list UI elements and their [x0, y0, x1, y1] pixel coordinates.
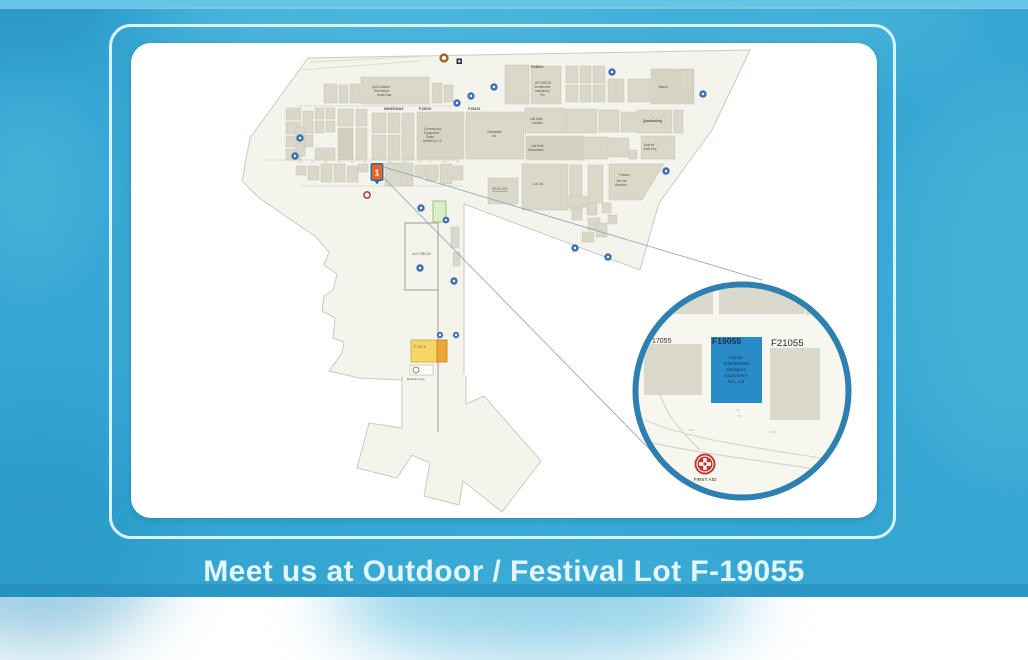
svg-text:Hunan: Hunan	[729, 355, 743, 360]
svg-text:Graft Exp: Graft Exp	[643, 147, 657, 151]
svg-text:Quadbarling: Quadbarling	[643, 119, 662, 123]
svg-text:Lot Ltd: Lot Ltd	[533, 182, 543, 186]
svg-text:F15029: F15029	[419, 107, 431, 111]
svg-text:AmeriCa LLC: AmeriCa LLC	[423, 139, 443, 143]
svg-text:F15033: F15033	[468, 107, 480, 111]
svg-text:Member camp: Member camp	[407, 377, 425, 381]
svg-text:Tarano: Tarano	[658, 85, 668, 89]
svg-text:AmeriGas: AmeriGas	[377, 93, 392, 97]
svg-text:MINEDMAX: MINEDMAX	[384, 107, 404, 111]
svg-text:1: 1	[375, 168, 380, 178]
svg-text:SINOBOOM: SINOBOOM	[723, 361, 748, 366]
svg-text:17055: 17055	[652, 338, 672, 345]
svg-text:F23004: F23004	[531, 65, 543, 69]
svg-text:America: America	[615, 183, 627, 187]
svg-text:Associates: Associates	[528, 148, 544, 152]
svg-text:F21055: F21055	[771, 338, 804, 349]
svg-text:Intelligent: Intelligent	[726, 367, 746, 372]
svg-text:Tex: Tex	[540, 93, 545, 97]
svg-text:Limited: Limited	[532, 121, 543, 125]
svg-text:Fabu/w: Fabu/w	[619, 173, 630, 177]
svg-text:Inc: Inc	[492, 134, 497, 138]
svg-text:F LOT #: F LOT #	[414, 345, 426, 349]
svg-text:CETA LOG: CETA LOG	[492, 187, 508, 191]
svg-text:FIRST AID: FIRST AID	[694, 477, 717, 483]
svg-text:Equipment: Equipment	[725, 373, 748, 378]
svg-text:Co., Ltd: Co., Ltd	[728, 379, 745, 384]
svg-text:F19055: F19055	[712, 336, 741, 346]
svg-text:4-H CIRCLE: 4-H CIRCLE	[412, 252, 432, 256]
